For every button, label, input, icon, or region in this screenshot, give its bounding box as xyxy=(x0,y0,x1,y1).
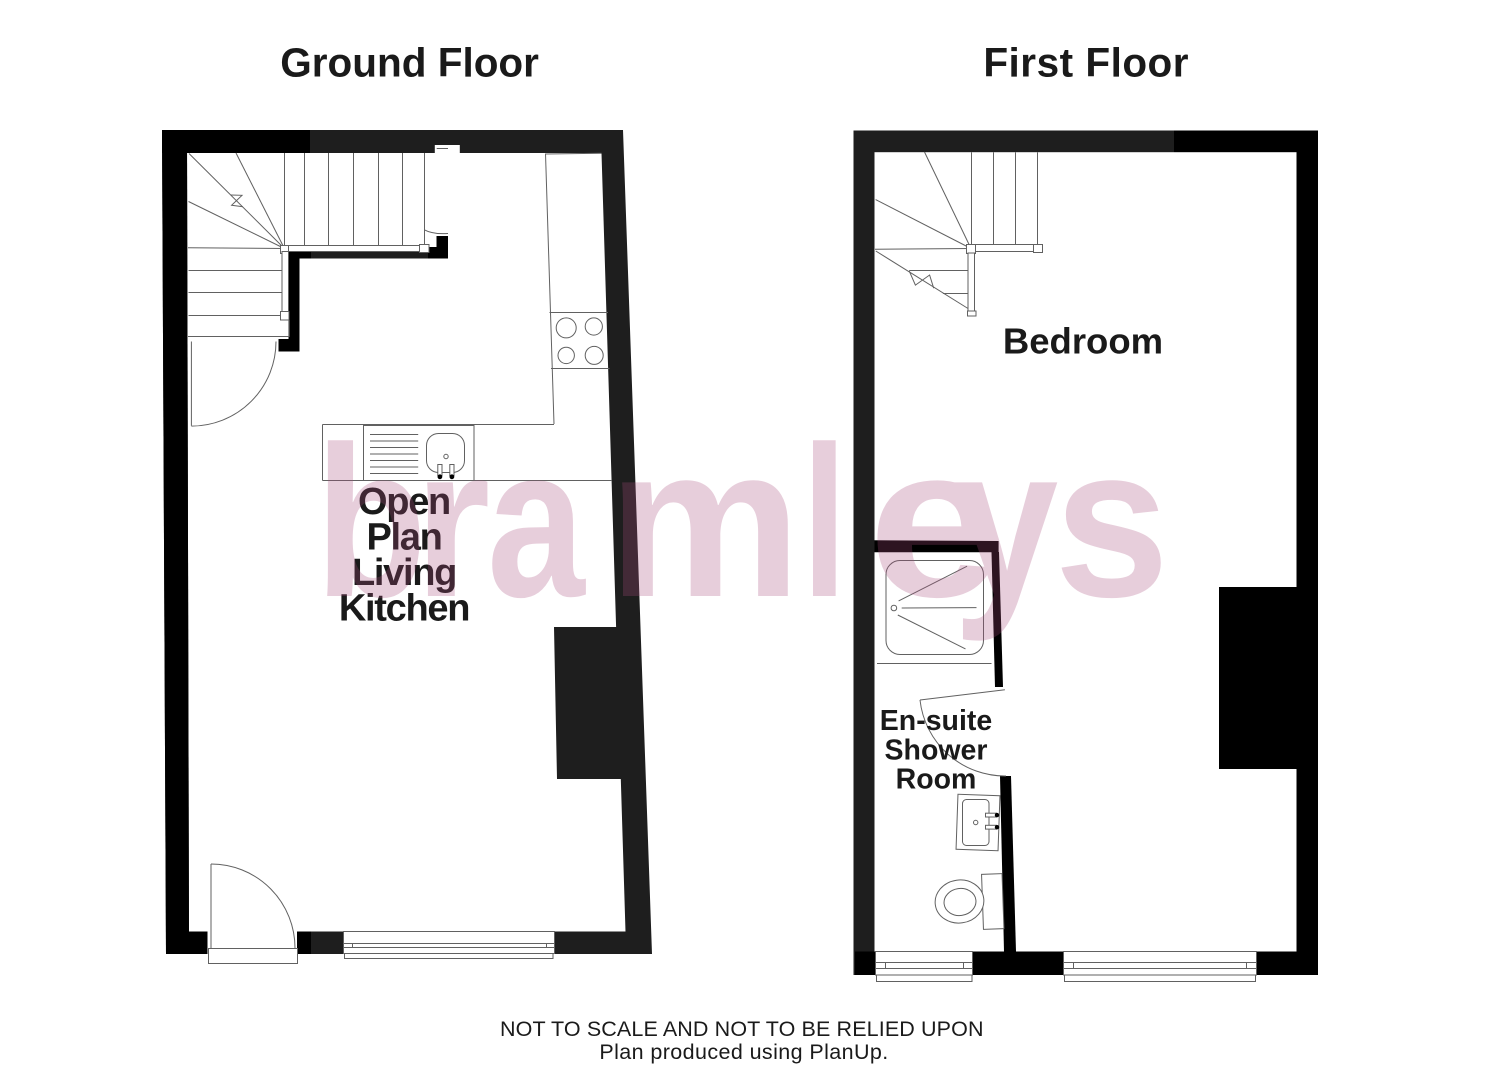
svg-text:a: a xyxy=(487,401,586,642)
svg-text:Ground Floor: Ground Floor xyxy=(280,39,539,85)
svg-text:m: m xyxy=(608,401,801,642)
svg-text:En-suite: En-suite xyxy=(880,705,992,737)
svg-text:NOT TO SCALE AND NOT TO BE REL: NOT TO SCALE AND NOT TO BE RELIED UPON xyxy=(500,1017,984,1041)
svg-text:Room: Room xyxy=(896,764,977,796)
svg-text:Plan produced using PlanUp.: Plan produced using PlanUp. xyxy=(599,1040,888,1064)
svg-text:r: r xyxy=(414,401,490,642)
svg-text:First Floor: First Floor xyxy=(983,40,1189,86)
svg-text:l: l xyxy=(802,402,848,642)
svg-text:Shower: Shower xyxy=(885,734,988,766)
svg-text:s: s xyxy=(1054,401,1169,642)
svg-text:y: y xyxy=(953,402,1058,642)
svg-text:b: b xyxy=(315,402,427,642)
svg-text:Bedroom: Bedroom xyxy=(1003,321,1163,362)
